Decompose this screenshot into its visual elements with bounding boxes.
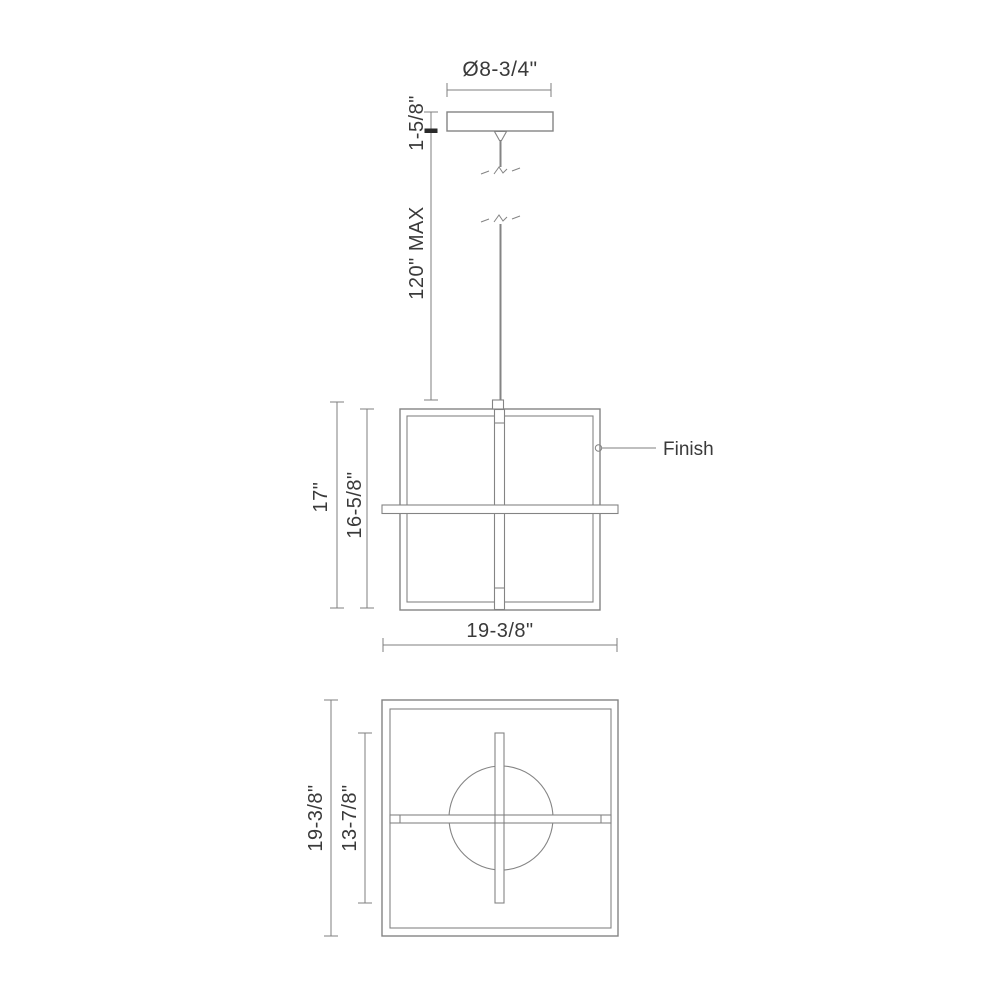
canopy-view: Ø8-3/4": [447, 58, 553, 400]
plan-center-stem: [495, 733, 504, 903]
break-mark-upper: [481, 167, 520, 174]
spec-drawing-page: Ø8-3/4" 1-5/8" 120" MAX Fini: [0, 0, 1000, 1000]
canopy-diameter-label: Ø8-3/4": [462, 58, 537, 81]
front-frame-height-label: 16-5/8": [344, 471, 366, 538]
max-drop-label: 120" MAX: [406, 206, 428, 299]
finish-callout-marker: [595, 445, 601, 451]
front-overall-width-label: 19-3/8": [466, 620, 533, 642]
finish-label: Finish: [663, 439, 714, 460]
canopy-outline: [447, 112, 553, 131]
plan-overall-depth-label: 19-3/8": [305, 784, 327, 851]
front-view-dimensions: [330, 402, 617, 652]
rod-mount-connector: [493, 400, 504, 409]
rod-coupler-cone: [495, 132, 507, 141]
front-overall-height-label: 17": [310, 482, 332, 513]
plan-inner-depth-label: 13-7/8": [339, 784, 361, 851]
canopy-diameter-dimension: [447, 83, 551, 97]
front-view: [382, 400, 656, 610]
dimension-drawing: Ø8-3/4" 1-5/8" 120" MAX Fini: [0, 0, 1000, 1000]
front-cross-bar: [382, 505, 618, 514]
plan-view: [382, 700, 618, 936]
canopy-height-label: 1-5/8": [406, 95, 428, 151]
break-mark-lower: [481, 215, 520, 222]
